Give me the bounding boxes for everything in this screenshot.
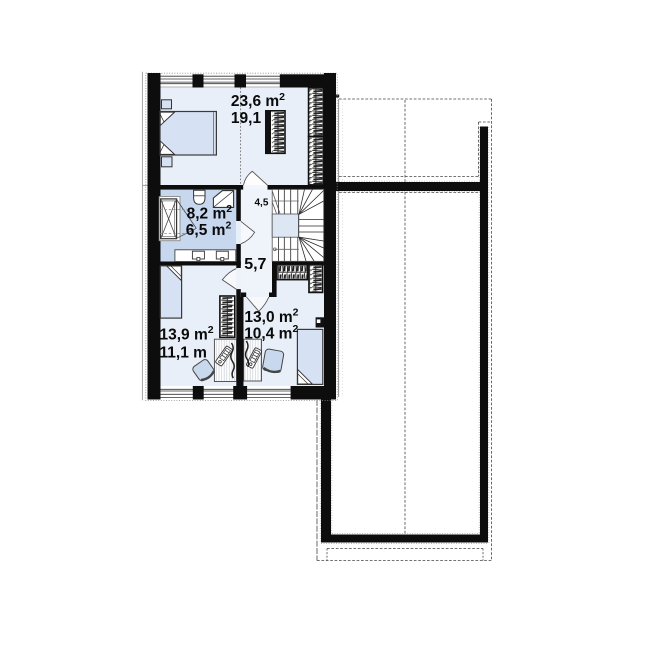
svg-text:10,4 m2: 10,4 m2 [244,323,298,342]
svg-text:23,6 m2: 23,6 m2 [231,91,285,110]
svg-text:19,1: 19,1 [231,110,262,127]
svg-text:6,5 m2: 6,5 m2 [186,220,232,239]
svg-text:11,1 m: 11,1 m [160,344,207,361]
svg-text:13,9 m2: 13,9 m2 [160,324,214,343]
svg-text:13,0 m2: 13,0 m2 [244,307,298,326]
svg-text:5,7: 5,7 [244,256,266,273]
svg-text:4,5: 4,5 [255,197,269,208]
